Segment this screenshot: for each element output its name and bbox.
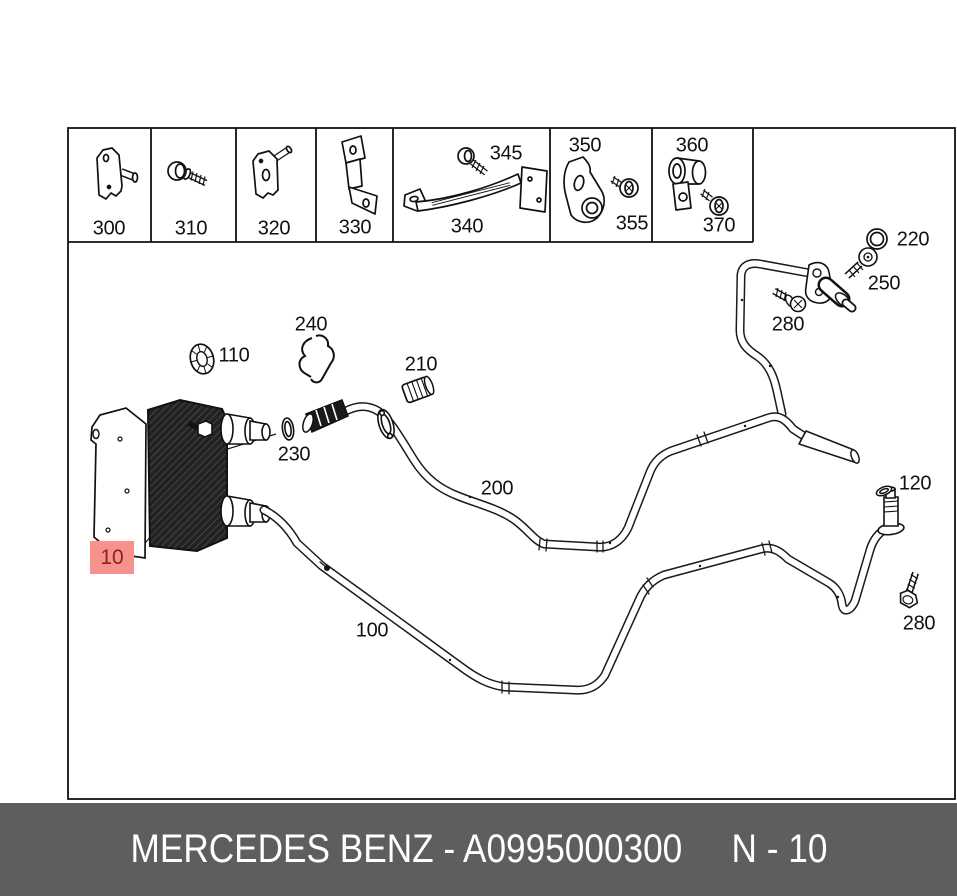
- part-300-bracket-icon: [97, 148, 138, 199]
- part-310-screw-icon: [168, 162, 206, 186]
- oil-pipe-100: [264, 510, 886, 694]
- pipe-end-fitting-icon: [806, 263, 853, 310]
- part-370-screw-icon: [702, 189, 728, 215]
- grommet-110-icon: [187, 342, 217, 377]
- strip-label-300: 300: [93, 218, 125, 241]
- strip-label-340: 340: [451, 216, 483, 239]
- parts-diagram-canvas: [0, 0, 957, 896]
- strip-label-345: 345: [490, 143, 522, 166]
- callout-280-bottom: 280: [903, 613, 935, 636]
- oil-cooler-icon: [91, 400, 270, 558]
- strip-label-350: 350: [569, 135, 601, 158]
- hose-coupling-icon: [301, 400, 348, 433]
- highlighted-part-number: 10: [100, 546, 123, 570]
- callout-280-top: 280: [772, 314, 804, 337]
- pipe-flange-icon: [375, 408, 398, 441]
- grommet-210-icon: [401, 375, 435, 403]
- callout-220: 220: [897, 229, 929, 252]
- strip-label-320: 320: [258, 218, 290, 241]
- part-330-bracket-icon: [342, 136, 377, 214]
- callout-230: 230: [278, 444, 310, 467]
- footer-sheet-ref: N - 10: [731, 827, 827, 872]
- footer-bar: MERCEDES BENZ - A0995000300 N - 10: [0, 803, 957, 896]
- callout-240: 240: [295, 314, 327, 337]
- strip-label-370: 370: [703, 215, 735, 238]
- seal-ring-230-icon: [281, 417, 295, 440]
- seal-ring-220-icon: [867, 229, 887, 249]
- part-340-strap-icon: [404, 167, 547, 212]
- strip-label-310: 310: [175, 218, 207, 241]
- strip-label-360: 360: [676, 135, 708, 158]
- strip-label-355: 355: [616, 213, 648, 236]
- oil-pipe-200: [346, 407, 861, 553]
- part-360-clamp-icon: [669, 158, 706, 210]
- part-320-bracket-icon: [253, 145, 293, 198]
- bolt-280-bottom-icon: [897, 570, 926, 609]
- highlighted-part-label-10: 10: [90, 541, 134, 574]
- part-355-screw-icon: [612, 176, 638, 197]
- part-345-screw-icon: [458, 148, 486, 174]
- screw-280-top-icon: [774, 288, 806, 312]
- part-350-bracket-icon: [564, 157, 604, 222]
- callout-110: 110: [219, 345, 250, 368]
- clip-240-icon: [299, 335, 333, 382]
- callout-100: 100: [356, 620, 388, 643]
- footer-brand-part-number: MERCEDES BENZ - A0995000300: [130, 827, 682, 872]
- callout-210: 210: [405, 354, 437, 377]
- strip-label-330: 330: [339, 217, 371, 240]
- callout-250: 250: [868, 273, 900, 296]
- parts-diagram-page: 300 310 320 330 340 345 350 355 360 370 …: [0, 0, 957, 896]
- callout-200: 200: [481, 478, 513, 501]
- callout-120: 120: [899, 473, 931, 496]
